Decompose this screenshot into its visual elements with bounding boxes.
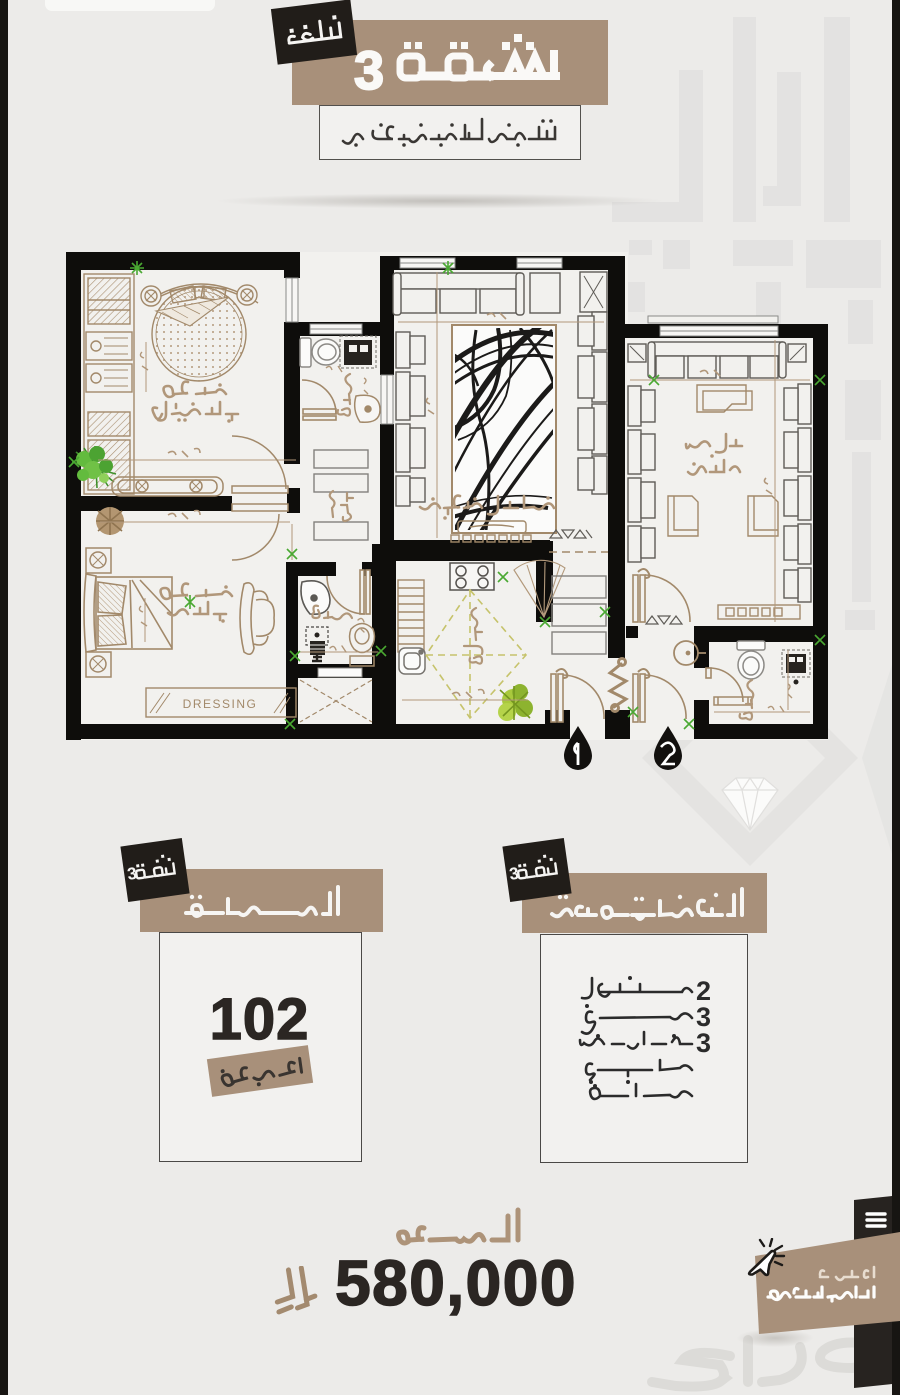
svg-text:DRESSING: DRESSING [183,697,258,711]
svg-text:3: 3 [126,864,138,884]
svg-text:3: 3 [696,1028,711,1058]
svg-text:3: 3 [508,864,520,884]
